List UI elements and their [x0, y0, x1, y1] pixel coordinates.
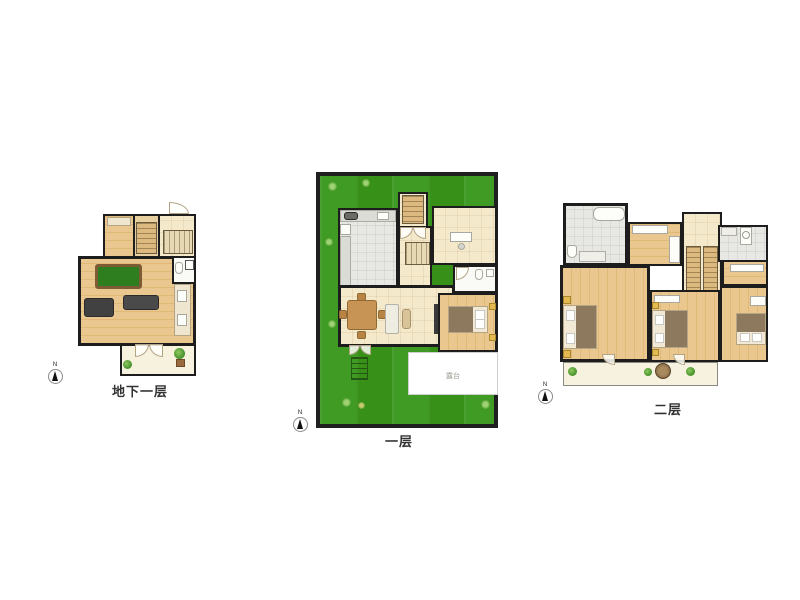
bed-pillow — [655, 315, 664, 325]
desk-chair — [458, 243, 465, 250]
terrace: 露台 — [408, 352, 498, 395]
compass-circle — [538, 389, 553, 404]
lawn-flower-icon — [358, 402, 365, 409]
lawn-flower-icon — [481, 400, 490, 409]
north-compass-icon: N — [47, 362, 63, 384]
second-bath-sink — [721, 227, 737, 236]
lawn-flower-icon — [362, 179, 370, 187]
main-staircase — [405, 242, 430, 265]
middle-bed — [652, 310, 688, 348]
compass-north-letter: N — [537, 382, 553, 388]
desk — [450, 232, 472, 242]
right-bedroom-wardrobe — [750, 296, 766, 306]
north-compass-icon: N — [537, 382, 553, 404]
bar-sink-lower — [177, 314, 187, 326]
first-floor-bed — [448, 306, 488, 333]
master-bed — [563, 305, 597, 349]
balcony-plant — [568, 367, 577, 376]
bed-blanket — [576, 306, 596, 348]
bathroom-sink — [486, 269, 494, 277]
second-floor-label: 二层 — [623, 399, 713, 418]
floorplan-canvas: 露台 — [0, 0, 800, 600]
wardrobe-top — [632, 225, 668, 234]
bar-sink-upper — [177, 290, 187, 302]
second-floor-staircase-left — [686, 246, 701, 294]
bed-pillow — [740, 333, 750, 342]
balcony-plant — [644, 368, 652, 376]
nightstand — [652, 302, 659, 309]
master-bath-toilet — [567, 245, 577, 258]
master-bath-sink-counter — [579, 251, 606, 262]
lawn-flower-icon — [328, 182, 337, 191]
top-staircase — [402, 195, 424, 224]
compass-needle — [542, 391, 548, 401]
bed-pillow — [655, 333, 664, 343]
kitchen-counter-left — [340, 236, 351, 288]
compass-north-letter: N — [292, 410, 308, 416]
compass-needle — [297, 419, 303, 429]
washing-machine — [740, 227, 752, 245]
bathtub — [593, 207, 625, 221]
nightstand — [652, 349, 659, 356]
basement-floor-label: 地下一层 — [85, 381, 195, 400]
compass-circle — [293, 417, 308, 432]
bed-blanket — [449, 307, 473, 332]
bed-blanket — [737, 314, 765, 332]
treadmill — [84, 298, 114, 317]
fridge — [340, 224, 351, 235]
patio-plant-potted — [174, 348, 185, 359]
bed-pillow — [566, 333, 575, 344]
patio-plant-small — [123, 360, 132, 369]
billiard-table — [95, 264, 142, 289]
basement-closet-cabinet — [107, 217, 131, 226]
bed-pillow — [566, 310, 575, 321]
first-floor-plan: 露台 — [315, 170, 515, 440]
terrace-label: 露台 — [409, 371, 497, 381]
garden-steps — [351, 357, 368, 380]
basement-entry-door-arc — [169, 202, 189, 214]
dining-table — [347, 300, 377, 330]
north-compass-icon: N — [292, 410, 308, 432]
compass-north-letter: N — [47, 362, 63, 368]
basement-toilet — [175, 262, 183, 274]
basement-entry-staircase — [163, 230, 193, 254]
patio-plant-pot — [176, 359, 185, 367]
compass-circle — [48, 369, 63, 384]
dining-chair — [357, 331, 366, 339]
dining-chair — [357, 293, 366, 301]
basement-shower — [185, 260, 194, 270]
bathroom-toilet — [475, 269, 483, 280]
dining-chair — [339, 310, 347, 319]
right-closet-shelf — [730, 264, 764, 272]
nightstand — [489, 303, 496, 310]
nightstand — [563, 350, 571, 358]
right-bed — [736, 313, 766, 345]
exercise-machine — [123, 295, 159, 310]
basement-upper-staircase — [136, 222, 157, 254]
balcony-round-table — [655, 363, 671, 379]
second-floor-staircase-right — [703, 246, 718, 294]
balcony-plant — [686, 367, 695, 376]
bed-pillow — [475, 319, 485, 329]
wardrobe-right — [669, 236, 680, 263]
compass-needle — [52, 371, 58, 381]
coffee-table — [402, 309, 411, 329]
nightstand — [563, 296, 571, 304]
stove — [344, 212, 358, 220]
sofa — [385, 304, 399, 334]
second-floor-balcony — [563, 362, 718, 386]
bed-blanket — [665, 311, 687, 347]
second-floor-plan — [540, 198, 775, 413]
lawn-flower-icon — [328, 320, 336, 328]
basement-plan — [75, 202, 205, 402]
lawn-flower-icon — [325, 238, 333, 246]
nightstand — [489, 334, 496, 341]
first-floor-label: 一层 — [354, 431, 444, 450]
bed-pillow — [752, 333, 762, 342]
lawn-flower-icon — [342, 398, 351, 407]
kitchen-sink — [377, 212, 389, 220]
